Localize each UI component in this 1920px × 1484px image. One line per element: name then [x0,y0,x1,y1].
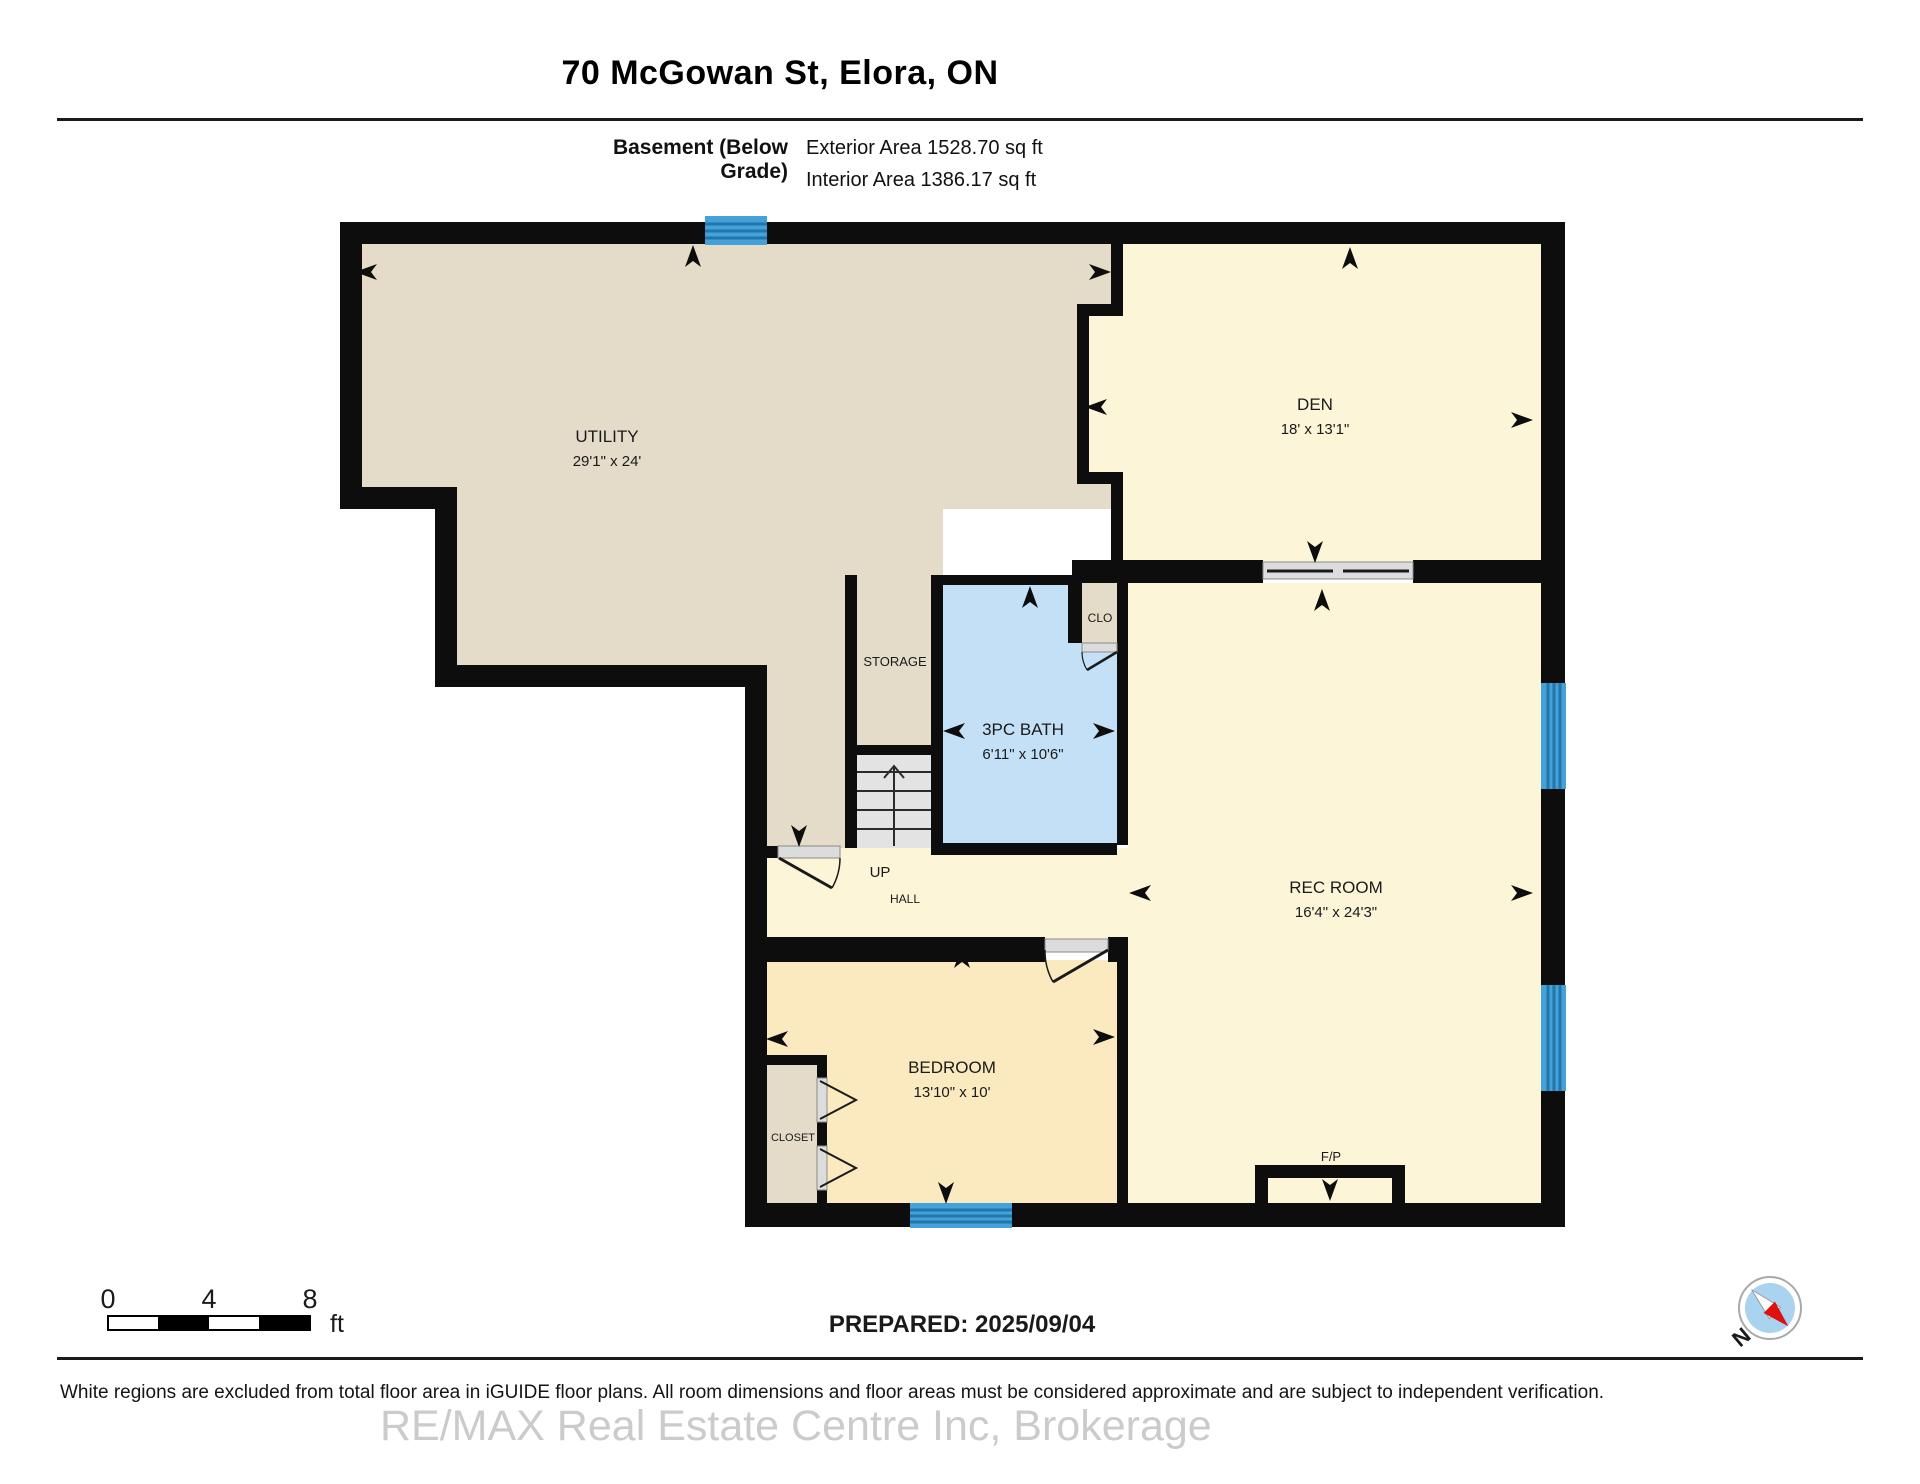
scale-tick-0: 0 [100,1284,115,1314]
scale-tick-4: 4 [201,1284,216,1314]
floor-plan-page: 70 McGowan St, Elora, ON Basement (Below… [0,0,1920,1484]
scale-unit: ft [330,1310,344,1338]
den-label: DEN [1297,395,1333,414]
rec-room-right-window-lower [1541,985,1566,1091]
fireplace-wall [1255,1165,1405,1178]
den-rec-sliding-door [1263,562,1413,579]
rec-room-label: REC ROOM [1289,878,1383,897]
utility-dims: 29'1" x 24' [573,453,642,470]
bedroom-label: BEDROOM [908,1058,996,1077]
bath-dims: 6'11" x 10'6" [982,746,1063,763]
hall-floor [767,848,1128,940]
bath-label: 3PC BATH [982,720,1064,739]
utility-hall-column [767,700,847,852]
scale-bar: 0 4 8 ft [100,1284,343,1338]
bedroom-bottom-window [910,1203,1012,1228]
rec-room-right-window-upper [1541,683,1566,789]
prepared-date: PREPARED: 2025/09/04 [829,1311,1096,1338]
disclaimer-text: White regions are excluded from total fl… [60,1382,1700,1404]
storage-label: STORAGE [863,654,927,669]
utility-label: UTILITY [575,427,638,446]
clo-label: CLO [1088,611,1113,625]
fireplace-label: F/P [1321,1149,1341,1164]
closet-label: CLOSET [771,1132,815,1144]
utility-top-window [705,216,767,245]
brokerage-watermark: RE/MAX Real Estate Centre Inc, Brokerage [380,1402,1200,1451]
hall-label: HALL [890,892,920,906]
utility-floor-lower [446,487,767,672]
den-floor-jog [1089,316,1123,476]
den-dims: 18' x 13'1" [1281,421,1350,438]
bedroom-dims: 13'10" x 10' [914,1084,991,1101]
footer-divider-rule [57,1357,1863,1360]
compass-icon: N [1727,1277,1801,1352]
up-label: UP [870,864,891,881]
rec-room-dims: 16'4" x 24'3" [1295,904,1377,921]
utility-floor [351,233,1111,509]
floor-plan-drawing: UTILITY 29'1" x 24' DEN 18' x 13'1" STOR… [0,0,1920,1484]
scale-tick-8: 8 [302,1284,317,1314]
